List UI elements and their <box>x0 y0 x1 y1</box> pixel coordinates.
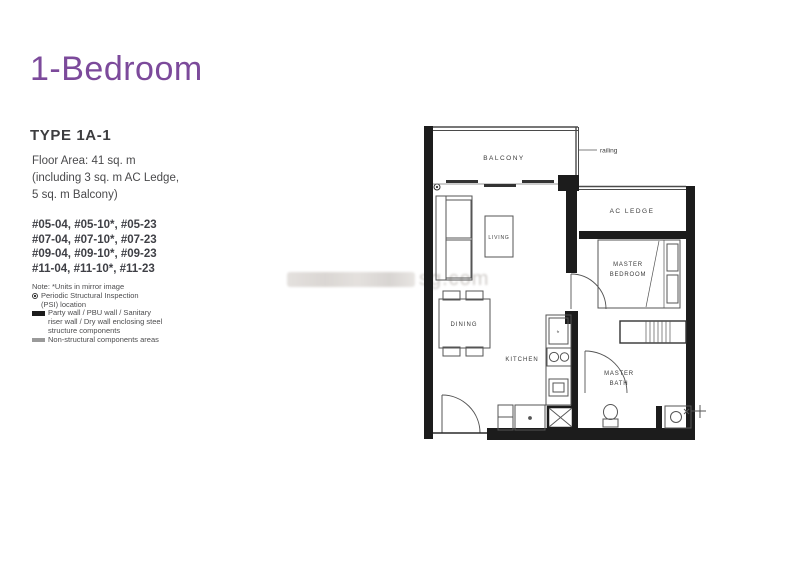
label-fridge: fr <box>557 329 560 334</box>
label-master-bath-2: BATH <box>610 381 629 387</box>
entry-door <box>433 395 487 433</box>
railing-callout: railing <box>579 148 618 155</box>
label-balcony: BALCONY <box>483 155 525 162</box>
legend-item-nonstructural: Non-structural components areas <box>32 336 192 345</box>
unit-number-row: #07-04, #07-10*, #07-23 <box>32 233 157 248</box>
label-living: LIVING <box>488 235 509 241</box>
unit-number-row: #05-04, #05-10*, #05-23 <box>32 218 157 233</box>
unit-type-label: TYPE 1A-1 <box>30 127 111 144</box>
legend-item-psi: Periodic Structural Inspection (PSI) loc… <box>32 292 192 310</box>
floor-area-line: Floor Area: 41 sq. m <box>32 153 179 170</box>
psi-marker-icon <box>32 293 38 299</box>
entry-cabinet <box>498 405 545 430</box>
floor-area-line: (including 3 sq. m AC Ledge, <box>32 170 179 187</box>
living-table: LIVING <box>485 216 513 257</box>
floorplan-drawing: BALCONY railing AC LEDGE <box>422 118 717 455</box>
psi-location-dot <box>436 186 438 188</box>
sliding-door <box>433 180 558 187</box>
toilet <box>603 405 618 428</box>
vanity-sink <box>665 405 706 428</box>
floorplan-page: 1-Bedroom TYPE 1A-1 Floor Area: 41 sq. m… <box>0 0 800 563</box>
walls <box>424 126 695 440</box>
label-master-bedroom-1: MASTER <box>613 262 643 268</box>
floor-area-block: Floor Area: 41 sq. m (including 3 sq. m … <box>32 153 179 204</box>
unit-number-row: #11-04, #11-10*, #11-23 <box>32 262 157 277</box>
wardrobe <box>620 321 686 343</box>
legend-item-party-wall: Party wall / PBU wall / Sanitary riser w… <box>32 309 192 335</box>
unit-number-row: #09-04, #09-10*, #09-23 <box>32 247 157 262</box>
label-dining: DINING <box>451 322 478 328</box>
label-railing: railing <box>600 148 618 155</box>
watermark-blob <box>287 272 415 287</box>
label-ac-ledge: AC LEDGE <box>610 208 655 215</box>
floor-area-line: 5 sq. m Balcony) <box>32 187 179 204</box>
unit-number-list: #05-04, #05-10*, #05-23 #07-04, #07-10*,… <box>32 218 157 276</box>
party-wall-swatch-icon <box>32 311 45 316</box>
floorplan-svg: BALCONY railing AC LEDGE <box>422 118 717 455</box>
label-master-bedroom-2: BEDROOM <box>610 272 647 278</box>
sofa <box>436 196 472 280</box>
label-master-bath-1: MASTER <box>604 371 634 377</box>
page-title: 1-Bedroom <box>30 50 203 89</box>
bedroom-door <box>571 274 606 309</box>
legend-nonstructural-text: Non-structural components areas <box>48 336 159 345</box>
nonstructural-swatch-icon <box>32 338 45 343</box>
room-ac-ledge <box>579 187 686 190</box>
label-kitchen: KITCHEN <box>505 357 538 363</box>
service-shaft <box>548 407 573 428</box>
legend-party-wall-text: Party wall / PBU wall / Sanitary riser w… <box>48 309 162 335</box>
legend-psi-text: Periodic Structural Inspection (PSI) loc… <box>41 292 139 310</box>
room-balcony <box>433 127 579 175</box>
legend-notes: Note: *Units in mirror image Periodic St… <box>32 283 192 345</box>
